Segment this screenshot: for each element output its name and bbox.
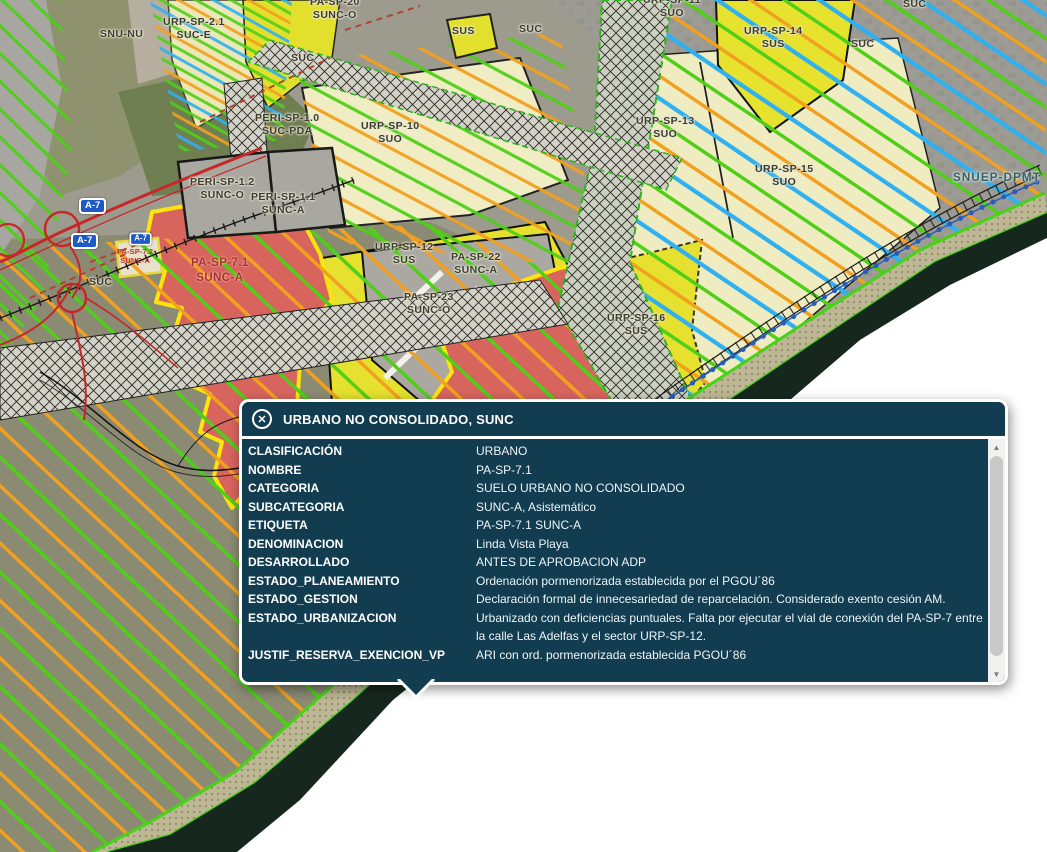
scrollbar-thumb[interactable] [990, 456, 1003, 656]
attribute-value: PA-SP-7.1 [476, 461, 986, 480]
map-zone-label: URP-SP-11 SUO [643, 0, 701, 20]
attribute-name: ESTADO_URBANIZACION [248, 609, 476, 646]
attribute-value: URBANO [476, 442, 986, 461]
attribute-value: PA-SP-7.1 SUNC-A [476, 516, 986, 535]
popup-header: ✕ URBANO NO CONSOLIDADO, SUNC [242, 402, 1005, 439]
scroll-down-icon[interactable]: ▼ [988, 666, 1005, 682]
scroll-up-icon[interactable]: ▲ [988, 439, 1005, 455]
feature-info-popup: ✕ URBANO NO CONSOLIDADO, SUNC CLASIFICAC… [239, 399, 1008, 685]
map-zone-label: A-7 [129, 232, 151, 245]
attribute-name: DESARROLLADO [248, 553, 476, 572]
attribute-value: SUELO URBANO NO CONSOLIDADO [476, 479, 986, 498]
map-zone-label: SUC [291, 52, 314, 65]
table-row: ESTADO_URBANIZACION Urbanizado con defic… [248, 609, 986, 646]
map-zone-label: PA-SP-23 SUNC-O [404, 291, 454, 317]
table-row: ESTADO_PLANEAMIENTO Ordenación pormenori… [248, 572, 986, 591]
map-zone-label: A-7 [79, 198, 106, 214]
map-zone-label: PA-SP-7.1 SUNC-A [191, 256, 249, 286]
popup-title: URBANO NO CONSOLIDADO, SUNC [283, 412, 514, 427]
attribute-name: ETIQUETA [248, 516, 476, 535]
attribute-value: Linda Vista Playa [476, 535, 986, 554]
map-zone-label: PA-SP-20 SUNC-O [310, 0, 360, 22]
attribute-name: ESTADO_GESTION [248, 590, 476, 609]
map-zone-label: PERI-SP-1.2 SUNC-O [190, 176, 255, 202]
table-row: CATEGORIA SUELO URBANO NO CONSOLIDADO [248, 479, 986, 498]
table-row: JUSTIF_RESERVA_EXENCION_VP ARI con ord. … [248, 646, 986, 665]
popup-body: CLASIFICACIÓN URBANO NOMBRE PA-SP-7.1 CA… [242, 439, 1005, 682]
attribute-name: CLASIFICACIÓN [248, 442, 476, 461]
map-zone-label: SUC [519, 23, 542, 36]
table-row: SUBCATEGORIA SUNC-A, Asistemático [248, 498, 986, 517]
map-zone-label: SUC [851, 38, 874, 51]
map-zone-label: SUC [903, 0, 926, 11]
attribute-name: DENOMINACION [248, 535, 476, 554]
attribute-table: CLASIFICACIÓN URBANO NOMBRE PA-SP-7.1 CA… [242, 439, 988, 682]
map-zone-label: PERI-SP-1.1 SUNC-A [251, 191, 316, 217]
scrollbar-track[interactable] [988, 455, 1005, 666]
map-zone-label: PA-SP-22 SUNC-A [451, 251, 501, 277]
map-zone-label: SUC [89, 276, 112, 289]
attribute-value: ANTES DE APROBACION ADP [476, 553, 986, 572]
map-zone-label: URP-SP-15 SUO [755, 163, 813, 189]
attribute-name: ESTADO_PLANEAMIENTO [248, 572, 476, 591]
attribute-value: ARI con ord. pormenorizada establecida P… [476, 646, 986, 665]
popup-tail [396, 679, 436, 701]
table-row: DENOMINACION Linda Vista Playa [248, 535, 986, 554]
map-zone-label: A-7 [71, 233, 98, 249]
map-zone-label: URP-SP-14 SUS [744, 25, 802, 51]
attribute-name: CATEGORIA [248, 479, 476, 498]
map-zone-label: URP-SP-12 SUS [375, 241, 433, 267]
map-zone-label: SNUEP-DPMT [953, 172, 1041, 185]
map-zone-label: URP-SP-10 SUO [361, 120, 419, 146]
attribute-value: SUNC-A, Asistemático [476, 498, 986, 517]
table-row: NOMBRE PA-SP-7.1 [248, 461, 986, 480]
map-canvas[interactable]: SNU-NU URP-SP-2.1 SUC-E PA-SP-20 SUNC-O … [0, 0, 1047, 852]
attribute-value: Ordenación pormenorizada establecida por… [476, 572, 986, 591]
table-row: ETIQUETA PA-SP-7.1 SUNC-A [248, 516, 986, 535]
close-icon[interactable]: ✕ [252, 409, 272, 429]
attribute-name: JUSTIF_RESERVA_EXENCION_VP [248, 646, 476, 665]
attribute-value: Declaración formal de innecesariedad de … [476, 590, 986, 609]
map-zone-label: SUS [452, 25, 475, 38]
map-zone-label: PA-SP-7.2 SUNC-A [117, 247, 153, 265]
table-row: ESTADO_GESTION Declaración formal de inn… [248, 590, 986, 609]
map-zone-label: URP-SP-16 SUS [607, 312, 665, 338]
attribute-name: SUBCATEGORIA [248, 498, 476, 517]
table-row: CLASIFICACIÓN URBANO [248, 442, 986, 461]
map-zone-label: SNU-NU [100, 28, 143, 41]
table-row: DESARROLLADO ANTES DE APROBACION ADP [248, 553, 986, 572]
map-zone-label: URP-SP-2.1 SUC-E [163, 16, 225, 42]
attribute-name: NOMBRE [248, 461, 476, 480]
map-zone-label: URP-SP-13 SUO [636, 115, 694, 141]
popup-scrollbar[interactable]: ▲ ▼ [988, 439, 1005, 682]
map-zone-label: PERI-SP-1.0 SUC-PDA [255, 112, 320, 138]
attribute-value: Urbanizado con deficiencias puntuales. F… [476, 609, 986, 646]
